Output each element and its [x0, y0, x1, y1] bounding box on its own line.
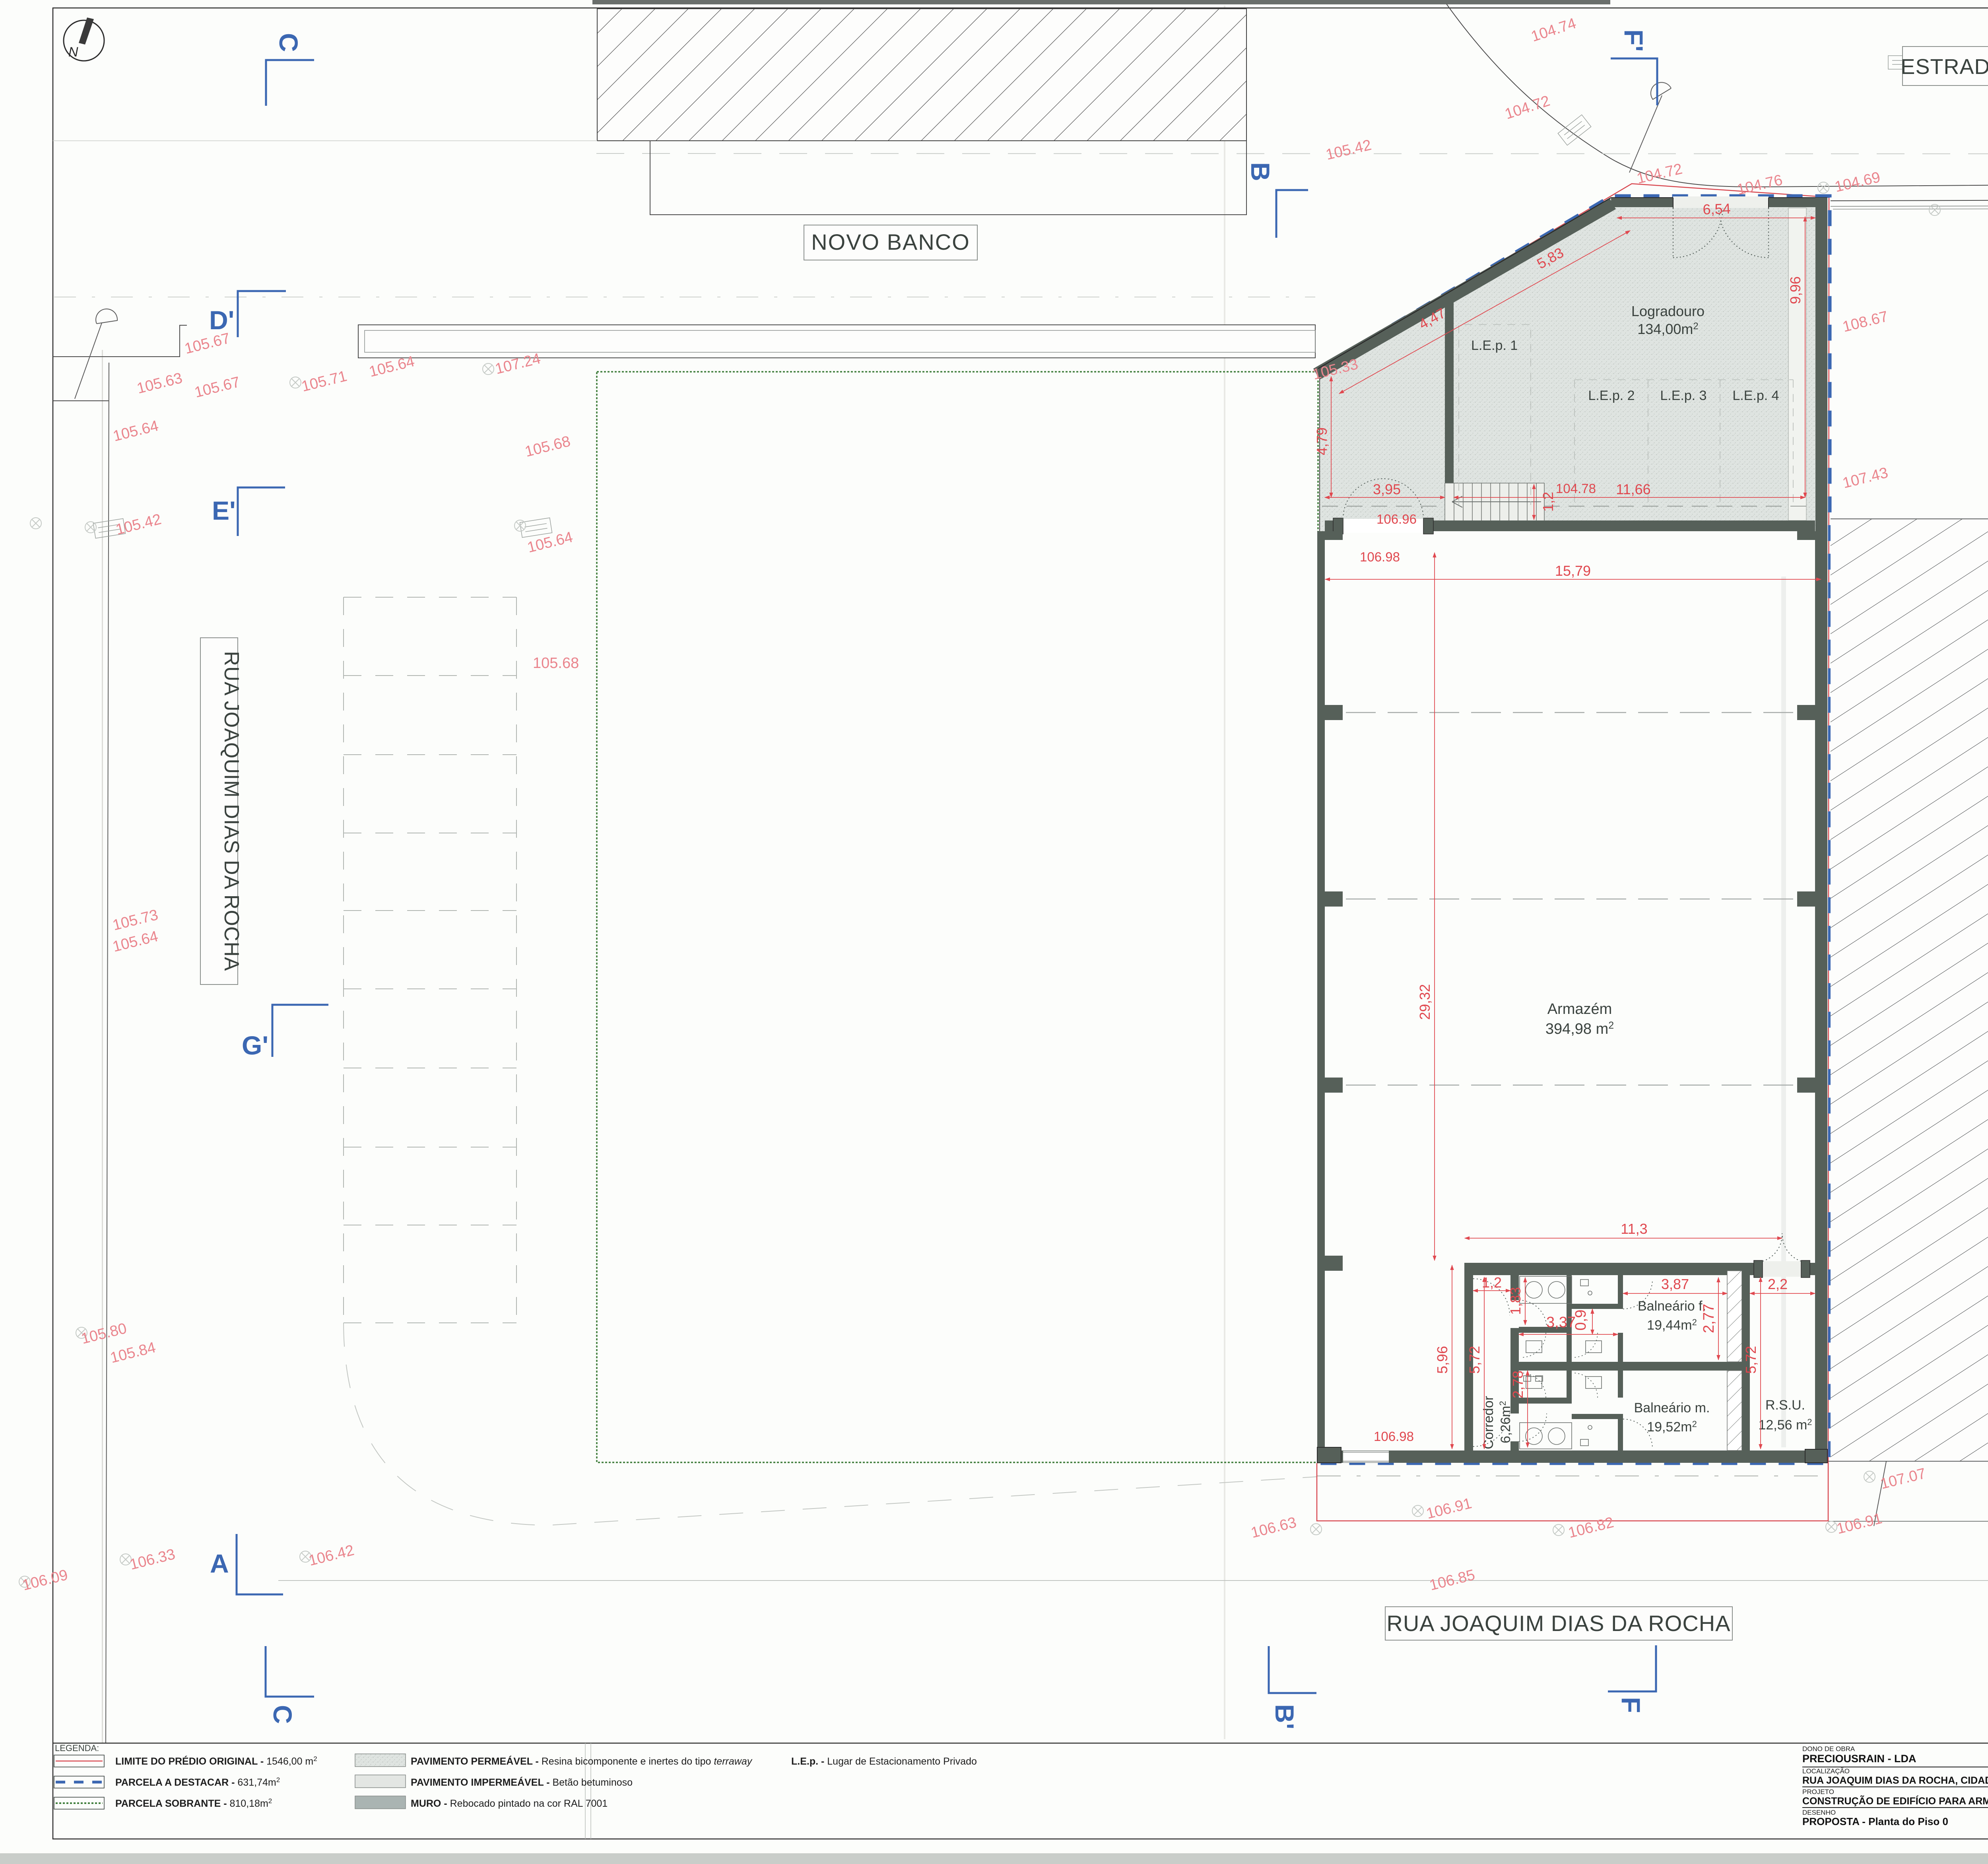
svg-text:RUA JOAQUIM DIAS DA ROCHA, CID: RUA JOAQUIM DIAS DA ROCHA, CIDADE DA MAI… [1802, 1775, 1988, 1786]
svg-text:394,98 m2: 394,98 m2 [1545, 1020, 1614, 1037]
svg-text:1,2: 1,2 [1482, 1274, 1502, 1291]
svg-text:1,83: 1,83 [1507, 1287, 1524, 1315]
svg-text:LOCALIZAÇÃO: LOCALIZAÇÃO [1802, 1767, 1850, 1775]
svg-text:F: F [1616, 1697, 1646, 1713]
svg-text:105.68: 105.68 [533, 655, 579, 672]
svg-text:L.E.p. 4: L.E.p. 4 [1732, 388, 1779, 403]
svg-text:2,2: 2,2 [1768, 1276, 1788, 1292]
svg-text:9,96: 9,96 [1787, 276, 1804, 304]
svg-text:C: C [268, 1705, 297, 1724]
svg-text:C: C [274, 33, 303, 52]
svg-text:D': D' [209, 305, 234, 335]
svg-text:2,77: 2,77 [1701, 1304, 1717, 1333]
svg-text:Balneário f.: Balneário f. [1638, 1299, 1706, 1314]
svg-text:5,72: 5,72 [1743, 1346, 1759, 1374]
svg-text:ESTRADA PÚBLICA: ESTRADA PÚBLICA [1901, 55, 1988, 79]
svg-text:6,26m2: 6,26m2 [1498, 1401, 1513, 1443]
svg-text:6,54: 6,54 [1703, 200, 1731, 217]
svg-text:R.S.U.: R.S.U. [1765, 1398, 1805, 1413]
svg-text:Armazém: Armazém [1547, 1001, 1612, 1017]
svg-text:L.E.p. - Lugar de Estacionamen: L.E.p. - Lugar de Estacionamento Privado [791, 1756, 977, 1767]
svg-text:B: B [1246, 162, 1275, 181]
svg-text:106.98: 106.98 [1360, 549, 1400, 564]
svg-text:LIMITE DO PRÉDIO ORIGINAL - 15: LIMITE DO PRÉDIO ORIGINAL - 1546,00 m2 [115, 1755, 317, 1767]
svg-text:1,2: 1,2 [1540, 492, 1556, 512]
svg-text:PROPOSTA - Planta do Piso 0: PROPOSTA - Planta do Piso 0 [1802, 1815, 1948, 1827]
svg-text:RUA JOAQUIM DIAS DA ROCHA: RUA JOAQUIM DIAS DA ROCHA [1386, 1611, 1730, 1636]
svg-text:A: A [210, 1549, 229, 1578]
svg-text:LEGENDA:: LEGENDA: [55, 1743, 99, 1753]
svg-text:134,00m2: 134,00m2 [1637, 321, 1698, 337]
svg-text:5,96: 5,96 [1434, 1346, 1450, 1374]
svg-text:PAVIMENTO PERMEÁVEL - Resina b: PAVIMENTO PERMEÁVEL - Resina bicomponent… [411, 1755, 753, 1767]
svg-text:19,52m2: 19,52m2 [1647, 1419, 1697, 1435]
svg-text:PROJETO: PROJETO [1802, 1788, 1834, 1796]
svg-text:106.96: 106.96 [1376, 512, 1417, 526]
svg-text:E': E' [212, 496, 236, 525]
svg-text:G': G' [242, 1031, 268, 1060]
svg-text:F': F' [1619, 29, 1648, 52]
svg-text:4,79: 4,79 [1314, 427, 1330, 455]
svg-text:L.E.p. 1: L.E.p. 1 [1471, 338, 1518, 353]
svg-text:RUA JOAQUIM DIAS DA ROCHA: RUA JOAQUIM DIAS DA ROCHA [220, 651, 243, 971]
svg-text:PRECIOUSRAIN - LDA: PRECIOUSRAIN - LDA [1802, 1753, 1916, 1765]
svg-text:CONSTRUÇÃO DE EDIFÍCIO PARA AR: CONSTRUÇÃO DE EDIFÍCIO PARA ARMAZENAGEM … [1802, 1795, 1988, 1807]
svg-text:Corredor: Corredor [1481, 1396, 1496, 1449]
svg-text:19,44m2: 19,44m2 [1647, 1317, 1697, 1333]
svg-text:12,56 m2: 12,56 m2 [1758, 1417, 1812, 1433]
svg-text:Logradouro: Logradouro [1631, 303, 1705, 319]
svg-text:0,9: 0,9 [1573, 1310, 1589, 1331]
svg-text:PAVIMENTO IMPERMEÁVEL - Betão: PAVIMENTO IMPERMEÁVEL - Betão betuminoso [411, 1777, 633, 1788]
svg-text:29,32: 29,32 [1417, 984, 1433, 1020]
svg-text:3,37: 3,37 [1546, 1314, 1576, 1331]
svg-text:DONO DE OBRA: DONO DE OBRA [1802, 1745, 1855, 1753]
svg-text:11,3: 11,3 [1621, 1221, 1647, 1237]
svg-text:Balneário m.: Balneário m. [1634, 1400, 1710, 1415]
svg-text:2,78: 2,78 [1510, 1371, 1526, 1398]
svg-text:PARCELA A DESTACAR - 631,74m2: PARCELA A DESTACAR - 631,74m2 [115, 1776, 280, 1788]
svg-text:3,87: 3,87 [1661, 1276, 1689, 1292]
svg-text:B': B' [1270, 1704, 1299, 1729]
svg-text:L.E.p. 2: L.E.p. 2 [1588, 388, 1635, 403]
svg-text:5,72: 5,72 [1466, 1346, 1483, 1374]
svg-text:NOVO BANCO: NOVO BANCO [811, 229, 970, 254]
svg-text:104.78: 104.78 [1556, 481, 1596, 496]
svg-text:L.E.p. 3: L.E.p. 3 [1660, 388, 1706, 403]
svg-text:PARCELA SOBRANTE - 810,18m2: PARCELA SOBRANTE - 810,18m2 [115, 1797, 272, 1809]
svg-text:106.98: 106.98 [1374, 1429, 1414, 1444]
svg-text:15,79: 15,79 [1555, 563, 1591, 579]
svg-text:N: N [68, 45, 78, 60]
svg-text:11,66: 11,66 [1616, 481, 1650, 497]
svg-text:3,95: 3,95 [1373, 481, 1401, 497]
svg-text:MURO - Rebocado pintado na cor: MURO - Rebocado pintado na cor RAL 7001 [411, 1798, 608, 1809]
